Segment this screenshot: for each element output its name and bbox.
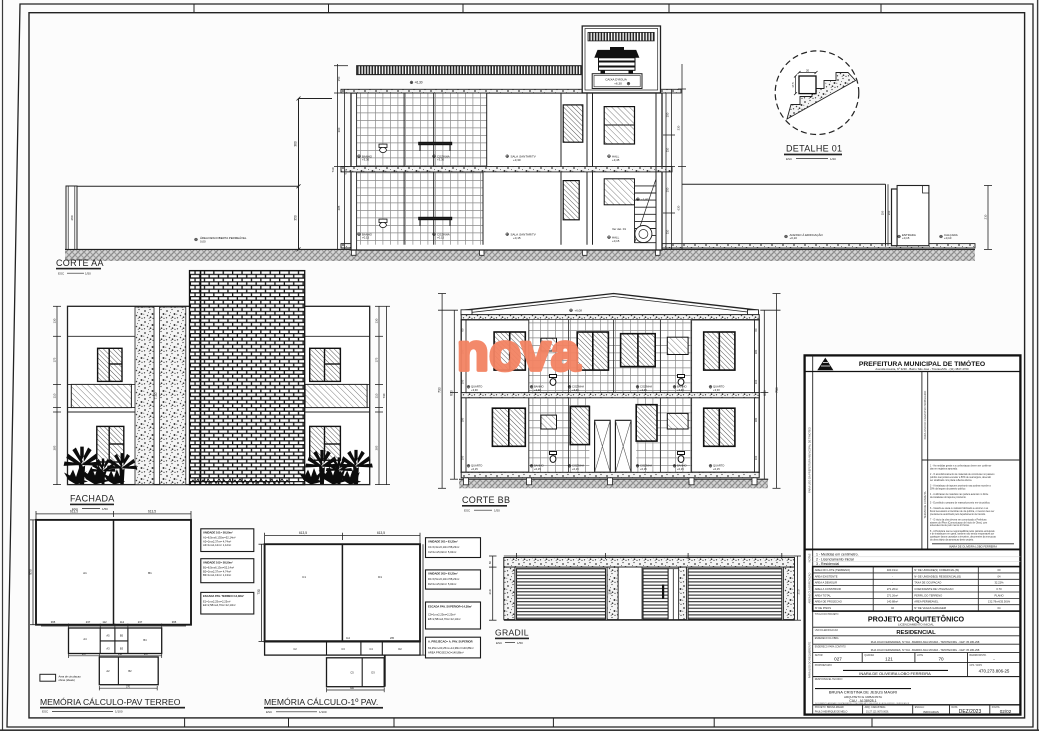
svg-text:USO DA EDIFICACAO: USO DA EDIFICACAO [815, 629, 839, 632]
svg-text:237: 237 [138, 620, 143, 624]
svg-text:MEMÓRIA CÁLCULO-PAV TERREO: MEMÓRIA CÁLCULO-PAV TERREO [40, 697, 181, 707]
svg-text:C3: C3 [341, 647, 345, 651]
svg-text:70: 70 [938, 657, 944, 662]
svg-text:D1=9,5mx6,13m=58,23m²: D1=9,5mx6,13m=58,23m² [428, 577, 459, 581]
svg-text:A4: A4 [83, 637, 87, 641]
svg-text:INARA DE OLIVEIRA LOBO FERREIR: INARA DE OLIVEIRA LOBO FERREIRA [949, 545, 997, 549]
svg-text:400.19m²: 400.19m² [887, 568, 898, 572]
svg-text:132.78m²(35.50)%: 132.78m²(35.50)% [988, 600, 1011, 604]
svg-text:C2: C2 [293, 647, 297, 651]
svg-text:AREA DE PROJECAO: AREA DE PROJECAO [815, 600, 842, 604]
svg-text:20: 20 [806, 69, 810, 73]
svg-text:PARA USO DO CADASTRO MOBILIARI: PARA USO DO CADASTRO MOBILIARIO [923, 391, 927, 440]
svg-text:B2=2mx2,37m= 4,74m²: B2=2mx2,37m= 4,74m² [203, 569, 231, 573]
svg-text:C5: C5 [350, 671, 354, 675]
svg-text:285: 285 [337, 205, 341, 210]
svg-text:+3,30: +3,30 [713, 388, 720, 392]
svg-text:730: 730 [438, 387, 442, 393]
svg-text:027: 027 [834, 657, 842, 662]
svg-text:+3,45: +3,45 [612, 158, 620, 162]
svg-text:2 - O acondicionamento de mate: 2 - O acondicionamento de materiais de c… [930, 473, 995, 476]
svg-text:3 - Residencial: 3 - Residencial [816, 562, 839, 566]
svg-text:e de instalacoes em geral, tam: e de instalacoes em geral, tambem nao se… [930, 533, 994, 536]
svg-text:UNIDADE 201= 63,25m²: UNIDADE 201= 63,25m² [428, 539, 458, 543]
svg-text:+0,10: +0,10 [944, 236, 952, 240]
svg-text:110: 110 [53, 393, 57, 398]
svg-text:A1=8,5mx6,135m=52,14m²: A1=8,5mx6,135m=52,14m² [203, 536, 236, 540]
svg-text:B1: B1 [148, 571, 152, 575]
svg-text:470.273.806-25: 470.273.806-25 [979, 668, 1010, 673]
svg-text:730: 730 [331, 167, 335, 172]
svg-text:Area de circulacao: Area de circulacao [59, 674, 82, 678]
svg-text:A2=2mx2,37m= 4,74m²: A2=2mx2,37m= 4,74m² [203, 539, 231, 543]
svg-text:300: 300 [350, 687, 355, 690]
svg-text:+3,30: +3,30 [513, 158, 521, 162]
svg-text:210: 210 [984, 214, 988, 219]
svg-text:Nº DE UNIDADE(S) COMERCIAL(IS): Nº DE UNIDADE(S) COMERCIAL(IS) [914, 568, 959, 572]
svg-text:CPF / CNPJ: CPF / CNPJ [970, 665, 983, 667]
svg-text:630: 630 [677, 205, 681, 210]
svg-text:nova: nova [457, 324, 581, 382]
svg-text:+0,10: +0,10 [790, 236, 798, 240]
svg-text:B4: B4 [143, 638, 147, 642]
svg-text:RUA JOAO FERNANDES, Nº 544 - B: RUA JOAO FERNANDES, Nº 544 - BAIRRO ANA … [871, 640, 980, 644]
svg-text:fiscal necessario a interdicao: fiscal necessario a interdicao de via pu… [930, 510, 995, 513]
svg-text:Nº DE UNIDADE(S) RESIDENCIAL(I: Nº DE UNIDADE(S) RESIDENCIAL(IS) [914, 574, 961, 578]
svg-text:TITULO DO PROJETO: TITULO DO PROJETO [815, 614, 839, 616]
svg-text:285: 285 [375, 445, 379, 450]
svg-text:publico nao podera exceder a 5: publico nao podera exceder a 50% de sua … [930, 476, 992, 479]
svg-text:1/50: 1/50 [85, 271, 91, 275]
svg-text:GRADIL: GRADIL [495, 628, 529, 638]
svg-text:A5: A5 [106, 634, 110, 638]
svg-text:ESC: ESC [464, 508, 471, 512]
svg-text:04: 04 [998, 574, 1001, 578]
svg-text:UNIDADE 202= 63,25m²: UNIDADE 202= 63,25m² [428, 572, 458, 576]
svg-text:UNIDADE 102= 58,50m²: UNIDADE 102= 58,50m² [203, 561, 233, 565]
svg-text:B3=1mx1,13m= 1,13m²: B3=1mx1,13m= 1,13m² [203, 573, 231, 577]
svg-text:237: 237 [144, 653, 149, 656]
svg-text:50% da largura do passeio publ: 50% da largura do passeio publico. [930, 487, 966, 490]
svg-text:+0,15: +0,15 [471, 467, 478, 471]
svg-text:da instalacao do tapume provis: da instalacao do tapume provisorio. [930, 496, 967, 499]
svg-text:130: 130 [53, 318, 57, 323]
svg-text:D1: D1 [378, 575, 382, 579]
svg-text:121: 121 [885, 657, 893, 662]
svg-text:ESCALA:: ESCALA: [915, 706, 925, 709]
svg-text:04: 04 [998, 606, 1001, 610]
svg-text:17,5: 17,5 [791, 82, 795, 88]
svg-text:-: - [892, 575, 893, 578]
svg-text:BRUNA MAGRI: BRUNA MAGRI [827, 706, 844, 709]
svg-text:quaisquer danos causados a ter: quaisquer danos causados a terceiros, de… [930, 536, 997, 539]
svg-text:atraves do iPhon (Comunicacao: atraves do iPhon (Comunicacao de Inicio … [930, 521, 987, 524]
svg-text:180: 180 [754, 417, 758, 422]
svg-text:FACHADA: FACHADA [70, 494, 115, 504]
svg-text:PROPRIETARIO: PROPRIETARIO [815, 664, 832, 667]
svg-text:280: 280 [70, 215, 74, 220]
svg-text:7 - O inicio da obra devera se: 7 - O inicio da obra devera ser comunica… [930, 518, 987, 521]
svg-text:B5: B5 [120, 634, 124, 638]
svg-text:AREA PROJECAO=140,88m²: AREA PROJECAO=140,88m² [428, 650, 464, 654]
svg-text:das em registros aprovado.: das em registros aprovado. [930, 467, 958, 470]
svg-text:1 - As medidas gerais e a conf: 1 - As medidas gerais e a confrontacao d… [930, 465, 992, 468]
svg-text:150: 150 [666, 112, 670, 117]
svg-text:-: - [892, 582, 893, 585]
svg-text:271.26m²: 271.26m² [887, 587, 898, 591]
svg-text:RESPONSAVEL TECNICO: RESPONSAVEL TECNICO [815, 678, 843, 681]
svg-text:INARA DE OLIVEIRA LOBO FERREIR: INARA DE OLIVEIRA LOBO FERREIRA [859, 671, 931, 676]
svg-text:AREA DO LOTE (TERRENO): AREA DO LOTE (TERRENO) [815, 568, 850, 572]
svg-text:B1=8,5mx6,13m=52,14m²: B1=8,5mx6,13m=52,14m² [203, 566, 234, 570]
svg-text:Nº DE PISOS: Nº DE PISOS [815, 606, 832, 610]
svg-text:+6,30: +6,30 [415, 81, 423, 85]
svg-text:6 - Usando-se areia ou calcari: 6 - Usando-se areia ou calcario fabricad… [930, 507, 989, 510]
svg-text:0,00: 0,00 [200, 239, 206, 243]
svg-text:100: 100 [754, 379, 758, 384]
svg-text:350: 350 [293, 215, 297, 221]
svg-text:1/50: 1/50 [517, 641, 523, 645]
svg-text:365: 365 [172, 620, 177, 624]
svg-text:ENDERECO PARA CONTATO: ENDERECO PARA CONTATO [815, 646, 846, 649]
svg-text:630: 630 [763, 390, 767, 396]
svg-text:613,5: 613,5 [299, 531, 307, 535]
svg-text:613,5: 613,5 [70, 510, 78, 514]
svg-text:+3,30: +3,30 [677, 388, 684, 392]
svg-text:A3: A3 [106, 647, 110, 651]
svg-text:210: 210 [797, 589, 801, 594]
svg-text:A. PROJECAO= A. PAV. SUPERIOR: A. PROJECAO= A. PAV. SUPERIOR [428, 640, 473, 644]
svg-text:+3,30: +3,30 [534, 388, 541, 392]
svg-text:8 - A Prefeitura nao se respon: 8 - A Prefeitura nao se responsabiliza p… [930, 530, 995, 533]
svg-text:PERFIL DO TERRENO: PERFIL DO TERRENO [914, 593, 942, 597]
svg-text:1/50: 1/50 [102, 507, 108, 511]
svg-text:+0,15: +0,15 [612, 239, 620, 243]
svg-text:antecedencia de pelo menos 24: antecedencia de pelo menos 24 horas. [930, 524, 970, 527]
svg-text:RUA JOAO FERNANDES, Nº 544 - B: RUA JOAO FERNANDES, Nº 544 - BAIRRO ANA … [871, 648, 980, 652]
svg-text:180: 180 [754, 349, 758, 354]
svg-text:360: 360 [293, 141, 297, 147]
svg-text:+0,15: +0,15 [902, 236, 910, 240]
svg-text:150: 150 [666, 187, 670, 192]
svg-text:C4: C4 [369, 647, 373, 651]
svg-text:285: 285 [53, 445, 57, 450]
svg-text:Ver det. 01: Ver det. 01 [612, 227, 626, 231]
svg-text:MEMÓRIA CÁLCULO-1º PAV.: MEMÓRIA CÁLCULO-1º PAV. [264, 697, 378, 707]
svg-text:ÁREA DESCOBERTA PERMEÁVEL: ÁREA DESCOBERTA PERMEÁVEL [200, 236, 247, 240]
svg-text:365: 365 [51, 620, 56, 624]
svg-text:E2=2,58mx4,70m=12,13m²: E2=2,58mx4,70m=12,13m² [203, 603, 236, 607]
svg-text:271.26m²: 271.26m² [887, 593, 898, 597]
svg-text:PARA USO DA PREFEITURA MUNICIP: PARA USO DA PREFEITURA MUNICIPAL DE TIMO… [807, 427, 811, 493]
svg-text:0.70: 0.70 [996, 587, 1002, 591]
svg-text:Avenida Acesita, Nº 3230 - Bai: Avenida Acesita, Nº 3230 - Bairro São Jo… [875, 367, 969, 371]
svg-text:AREA E CLASSIFICACAO: AREA E CLASSIFICACAO [807, 573, 811, 604]
svg-text:60: 60 [488, 561, 492, 564]
svg-text:DATA:: DATA: [952, 706, 959, 709]
svg-text:COEFICIENTE DE UTILIZACAO: COEFICIENTE DE UTILIZACAO [914, 587, 953, 591]
svg-text:TERMO DE CONDUTA: TERMO DE CONDUTA [923, 491, 927, 518]
svg-text:+3,30: +3,30 [471, 388, 478, 392]
svg-text:210: 210 [608, 589, 612, 594]
svg-text:BRUNA CRISTINA DE JESUS MAGRI: BRUNA CRISTINA DE JESUS MAGRI [829, 689, 897, 694]
svg-text:5 - E proibido o preparo de ma: 5 - E proibido o preparo de massa/concre… [930, 501, 990, 504]
svg-text:+3,30: +3,30 [572, 388, 579, 392]
svg-text:265: 265 [390, 637, 395, 640]
svg-text:112: 112 [120, 620, 125, 624]
svg-text:AREA EXISTENTE: AREA EXISTENTE [815, 574, 838, 578]
svg-text:C2=1mx5,02m= 5,02m²: C2=1mx5,02m= 5,02m² [428, 550, 456, 554]
svg-text:+6,30: +6,30 [614, 82, 622, 86]
svg-text:850: 850 [29, 569, 33, 575]
svg-text:237: 237 [82, 653, 87, 656]
svg-text:ESC: ESC [266, 710, 273, 714]
svg-text:C5=1mx2,25m=2,25m²: C5=1mx2,25m=2,25m² [428, 613, 456, 617]
svg-text:ENDERECO DA OBRA: ENDERECO DA OBRA [815, 637, 839, 640]
svg-text:QUADRA: QUADRA [864, 654, 874, 657]
svg-text:DETALHE 01: DETALHE 01 [786, 144, 842, 154]
svg-text:obras (ideais): obras (ideais) [59, 678, 75, 682]
svg-text:ESC: ESC [496, 641, 503, 645]
svg-text:175: 175 [375, 357, 379, 362]
svg-text:AREA A DEMOLIR: AREA A DEMOLIR [815, 581, 837, 585]
svg-text:NOTAS: NOTAS [807, 553, 811, 562]
svg-text:1/100: 1/100 [319, 710, 327, 714]
svg-text:D2=1mx5,02m= 5,02m²: D2=1mx5,02m= 5,02m² [428, 582, 456, 586]
svg-text:PROJETO:: PROJETO: [815, 707, 827, 709]
svg-text:ESC: ESC [786, 157, 793, 161]
svg-text:32.22%: 32.22% [994, 581, 1004, 585]
svg-text:PLANO: PLANO [994, 593, 1003, 597]
svg-text:112: 112 [346, 637, 350, 640]
svg-text:100: 100 [461, 455, 465, 460]
svg-text:RESIDENCIAL: RESIDENCIAL [896, 630, 936, 636]
svg-text:130: 130 [375, 318, 379, 323]
svg-text:298: 298 [118, 653, 123, 656]
svg-text:730: 730 [257, 589, 261, 595]
svg-text:370: 370 [126, 685, 131, 688]
svg-text:1/20: 1/20 [830, 157, 836, 161]
svg-text:63,25m²+63,25m²+14,38m²=140,88: 63,25m²+63,25m²+14,38m²=140,88m² [428, 646, 474, 650]
svg-text:+6,08: +6,08 [575, 308, 583, 312]
svg-text:CORTE BB: CORTE BB [462, 495, 510, 505]
svg-text:730: 730 [382, 393, 386, 398]
svg-text:7,30: 7,30 [154, 393, 158, 400]
svg-text:A3=1mx1,12m= 1,12m²: A3=1mx1,12m= 1,12m² [203, 543, 231, 547]
svg-text:ESC: ESC [42, 710, 49, 714]
svg-text:+0,15: +0,15 [534, 467, 541, 471]
svg-text:110: 110 [666, 147, 670, 152]
svg-text:A2: A2 [106, 669, 110, 673]
svg-text:+3,30: +3,30 [640, 388, 647, 392]
svg-text:3 - A instalacao de tapume pro: 3 - A instalacao de tapume provisorio na… [930, 484, 991, 487]
svg-text:da obra objeto da aprovacao de: da obra objeto da aprovacao deste projet… [930, 539, 974, 542]
svg-text:ser sinalizado com placa refle: ser sinalizado com placa reflexiva diurn… [930, 479, 972, 482]
svg-text:AREA PERMEAVEL: AREA PERMEAVEL [914, 600, 939, 604]
svg-text:PARA USO DO REQUERENTE: PARA USO DO REQUERENTE [807, 642, 811, 679]
svg-text:DEZ/2023: DEZ/2023 [959, 709, 982, 715]
svg-text:PAULO HENRIQUE DE MELO: PAULO HENRIQUE DE MELO [815, 710, 848, 713]
svg-text:A1: A1 [83, 571, 87, 575]
svg-text:ESCADA PAV. SUPERIOR=14,38m²: ESCADA PAV. SUPERIOR=14,38m² [428, 605, 472, 609]
svg-text:112: 112 [102, 620, 107, 624]
svg-text:+3,30: +3,30 [362, 158, 370, 162]
svg-text:B3: B3 [120, 647, 124, 651]
svg-text:31 27 121 0070.0001: 31 27 121 0070.0001 [866, 710, 889, 713]
svg-text:ARQUITETO E URBANISTA: ARQUITETO E URBANISTA [844, 695, 882, 699]
svg-text:02: 02 [891, 606, 894, 610]
svg-text:previamente autorizado pelo de: previamente autorizado pelo departamento… [930, 513, 986, 516]
svg-text:613,5: 613,5 [377, 531, 385, 535]
svg-text:INDICADAS: INDICADAS [923, 710, 939, 714]
svg-text:1 - Medidas em centímetro.: 1 - Medidas em centímetro. [816, 553, 859, 557]
svg-text:+0,15: +0,15 [513, 236, 521, 240]
svg-text:+0,15: +0,15 [677, 467, 684, 471]
svg-text:4 - A utilizacao de materiais: 4 - A utilizacao de materiais nao podera… [930, 493, 989, 496]
svg-text:630: 630 [344, 169, 348, 174]
svg-text:730: 730 [775, 387, 779, 393]
svg-text:300: 300 [337, 127, 341, 132]
svg-text:C1=9,3mx6,13m=58,23m²: C1=9,3mx6,13m=58,23m² [428, 545, 459, 549]
svg-text:210: 210 [488, 589, 492, 594]
svg-text:+0,15: +0,15 [362, 236, 370, 240]
svg-text:AREA TOTAL: AREA TOTAL [815, 593, 832, 597]
svg-text:ESCADA PAV. TERREO=14,38m²: ESCADA PAV. TERREO=14,38m² [203, 594, 244, 598]
svg-text:237: 237 [86, 620, 91, 624]
svg-text:UNIDADE 101= 58,50m²: UNIDADE 101= 58,50m² [203, 531, 233, 535]
svg-text:613,5: 613,5 [148, 510, 156, 514]
svg-text:Nº DE VAGAS GARAGEM: Nº DE VAGAS GARAGEM [914, 606, 946, 610]
svg-text:+0,15: +0,15 [640, 467, 647, 471]
svg-text:+3,30: +3,30 [437, 158, 445, 162]
svg-text:BAIRRO/DISTR.: BAIRRO/DISTR. [970, 654, 987, 657]
svg-text:LICENCIAMENTO INICIAL: LICENCIAMENTO INICIAL [898, 623, 934, 627]
svg-text:100: 100 [754, 455, 758, 460]
svg-text:180: 180 [461, 417, 465, 422]
svg-text:110: 110 [666, 229, 670, 234]
svg-text:+1,87: +1,87 [641, 197, 649, 201]
svg-text:110: 110 [375, 393, 379, 398]
svg-text:D3: D3 [371, 671, 375, 675]
svg-text:CORTE AA: CORTE AA [56, 258, 104, 268]
svg-text:+0,15: +0,15 [572, 467, 579, 471]
svg-text:330: 330 [677, 125, 681, 130]
svg-text:150: 150 [337, 76, 341, 81]
svg-text:630: 630 [450, 390, 454, 396]
svg-text:1/50: 1/50 [494, 508, 500, 512]
svg-text:E1=1mx2,25m=2,25m²: E1=1mx2,25m=2,25m² [203, 599, 230, 603]
svg-text:+0,15: +0,15 [437, 236, 445, 240]
svg-text:140.88m²: 140.88m² [887, 600, 898, 604]
svg-text:LOTE: LOTE [917, 655, 923, 657]
svg-text:1/100: 1/100 [115, 710, 123, 714]
svg-text:210: 210 [887, 210, 891, 215]
svg-text:2 - Licenciamento Inicial: 2 - Licenciamento Inicial [816, 557, 854, 561]
svg-text:ESC: ESC [58, 271, 65, 275]
svg-text:D2: D2 [398, 647, 402, 651]
svg-text:+0,15: +0,15 [713, 467, 720, 471]
svg-text:TAXA DE OCUPACAO: TAXA DE OCUPACAO [914, 581, 941, 585]
svg-text:AREA A CONSTRUIR: AREA A CONSTRUIR [815, 587, 841, 591]
svg-text:B2: B2 [128, 669, 132, 673]
svg-text:175: 175 [53, 357, 57, 362]
svg-text:00: 00 [998, 568, 1001, 572]
svg-text:ARQ. CADASTRAL:: ARQ. CADASTRAL: [865, 706, 887, 709]
svg-text:SETOR: SETOR [815, 655, 823, 657]
svg-text:E5=2,58mx4,70m=12,13m²: E5=2,58mx4,70m=12,13m² [428, 617, 461, 621]
svg-text:02/02: 02/02 [1000, 709, 1012, 714]
svg-text:250: 250 [881, 210, 885, 215]
svg-text:C1: C1 [302, 575, 306, 579]
